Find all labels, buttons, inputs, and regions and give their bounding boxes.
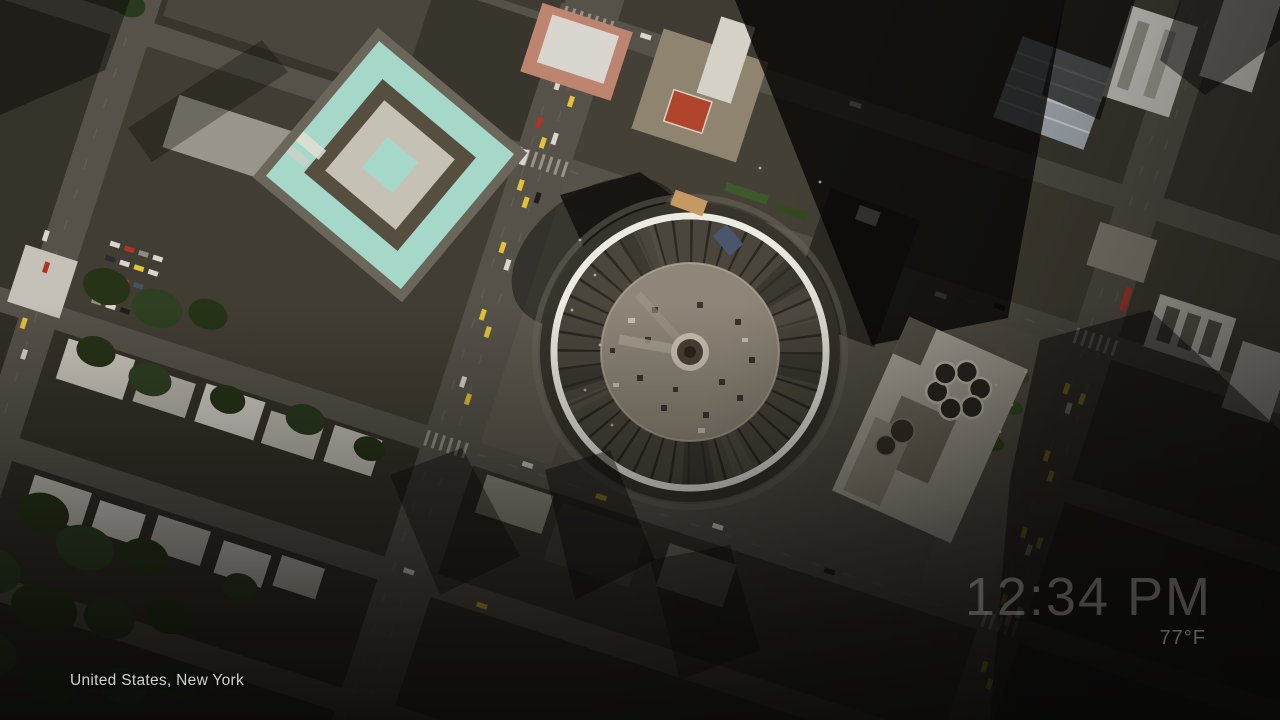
clock-time: 12:34 PM [965,570,1212,624]
temperature-label: 77°F [965,627,1206,650]
clock-widget: 12:34 PM 77°F [965,570,1212,650]
location-label: United States, New York [70,672,244,690]
ambient-screensaver: United States, New York 12:34 PM 77°F [0,0,1280,720]
